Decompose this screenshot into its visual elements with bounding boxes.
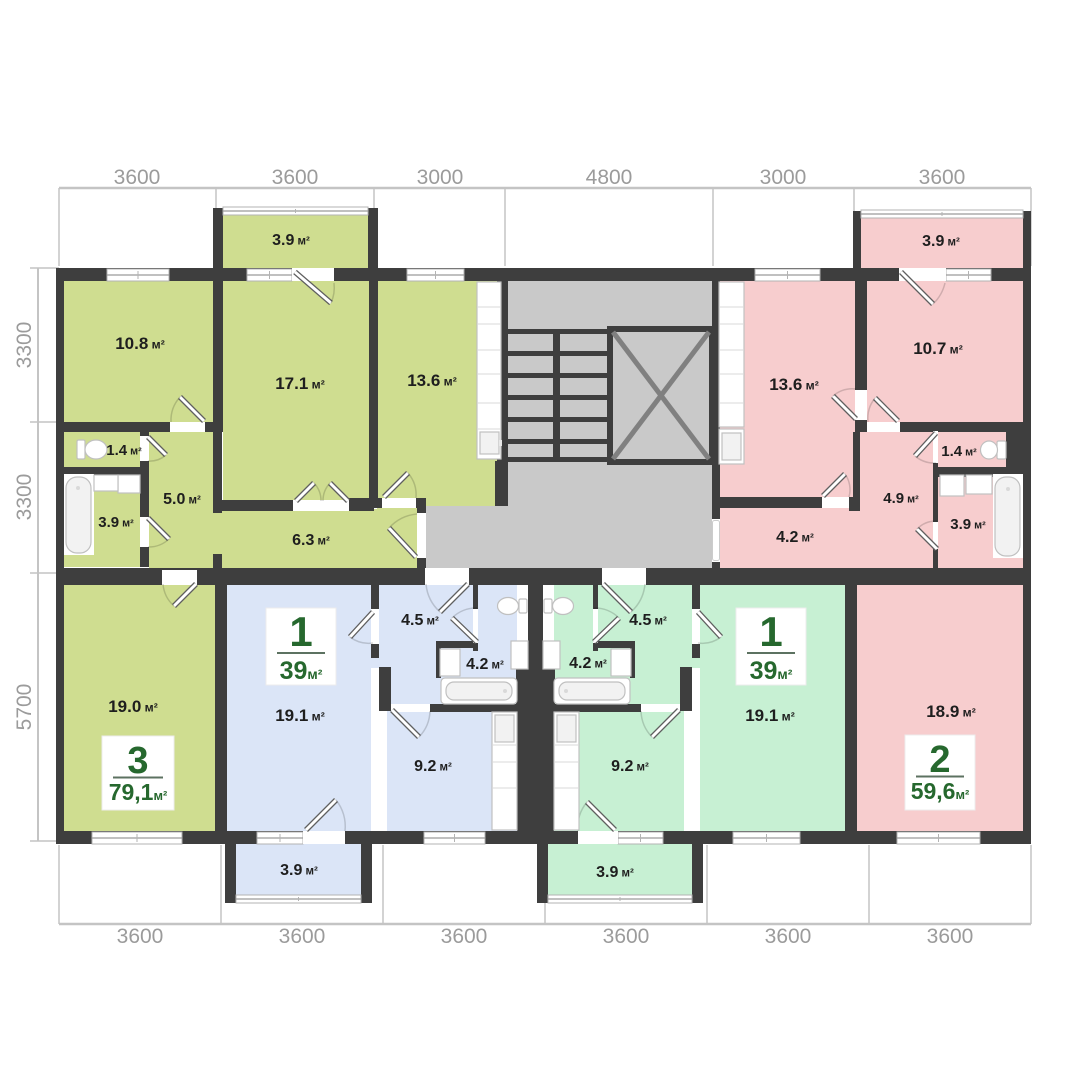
- svg-text:3.9 м²: 3.9 м²: [272, 232, 310, 249]
- svg-text:4.5 м²: 4.5 м²: [629, 612, 667, 629]
- svg-text:4.5 м²: 4.5 м²: [401, 612, 439, 629]
- svg-text:3000: 3000: [417, 166, 464, 189]
- svg-text:2: 2: [929, 739, 950, 781]
- svg-text:19.0 м²: 19.0 м²: [108, 697, 158, 716]
- svg-text:4.9 м²: 4.9 м²: [883, 490, 919, 507]
- svg-text:3600: 3600: [927, 925, 974, 948]
- svg-text:3.9 м²: 3.9 м²: [98, 514, 134, 531]
- svg-text:3.9 м²: 3.9 м²: [922, 233, 960, 250]
- svg-text:4.2 м²: 4.2 м²: [466, 656, 504, 673]
- svg-text:6.3 м²: 6.3 м²: [292, 532, 330, 549]
- svg-text:3600: 3600: [279, 925, 326, 948]
- svg-text:3300: 3300: [13, 322, 36, 369]
- svg-text:19.1 м²: 19.1 м²: [275, 706, 325, 725]
- svg-text:4.2 м²: 4.2 м²: [569, 655, 607, 672]
- svg-text:13.6 м²: 13.6 м²: [407, 371, 457, 390]
- svg-text:5.0 м²: 5.0 м²: [163, 491, 201, 508]
- svg-text:4800: 4800: [586, 166, 633, 189]
- svg-text:3600: 3600: [272, 166, 319, 189]
- svg-text:3600: 3600: [114, 166, 161, 189]
- svg-text:9.2 м²: 9.2 м²: [611, 758, 649, 775]
- svg-text:3600: 3600: [765, 925, 812, 948]
- svg-text:5700: 5700: [13, 684, 36, 731]
- svg-text:10.7 м²: 10.7 м²: [913, 339, 963, 358]
- svg-text:1: 1: [759, 608, 782, 655]
- svg-text:1.4 м²: 1.4 м²: [106, 442, 142, 459]
- svg-text:3000: 3000: [760, 166, 807, 189]
- svg-text:3300: 3300: [13, 474, 36, 521]
- svg-text:3.9 м²: 3.9 м²: [950, 516, 986, 533]
- svg-text:3600: 3600: [919, 166, 966, 189]
- svg-text:1.4 м²: 1.4 м²: [941, 443, 977, 460]
- svg-text:1: 1: [289, 608, 312, 655]
- svg-text:10.8 м²: 10.8 м²: [115, 334, 165, 353]
- svg-text:13.6 м²: 13.6 м²: [769, 375, 819, 394]
- svg-text:18.9 м²: 18.9 м²: [926, 702, 976, 721]
- svg-text:3600: 3600: [441, 925, 488, 948]
- svg-text:19.1 м²: 19.1 м²: [745, 706, 795, 725]
- svg-text:3.9 м²: 3.9 м²: [280, 862, 318, 879]
- svg-text:17.1 м²: 17.1 м²: [275, 374, 325, 393]
- svg-text:3600: 3600: [603, 925, 650, 948]
- svg-text:3: 3: [127, 740, 148, 782]
- svg-text:3.9 м²: 3.9 м²: [596, 864, 634, 881]
- svg-text:3600: 3600: [117, 925, 164, 948]
- svg-text:4.2 м²: 4.2 м²: [776, 529, 814, 546]
- svg-text:9.2 м²: 9.2 м²: [414, 758, 452, 775]
